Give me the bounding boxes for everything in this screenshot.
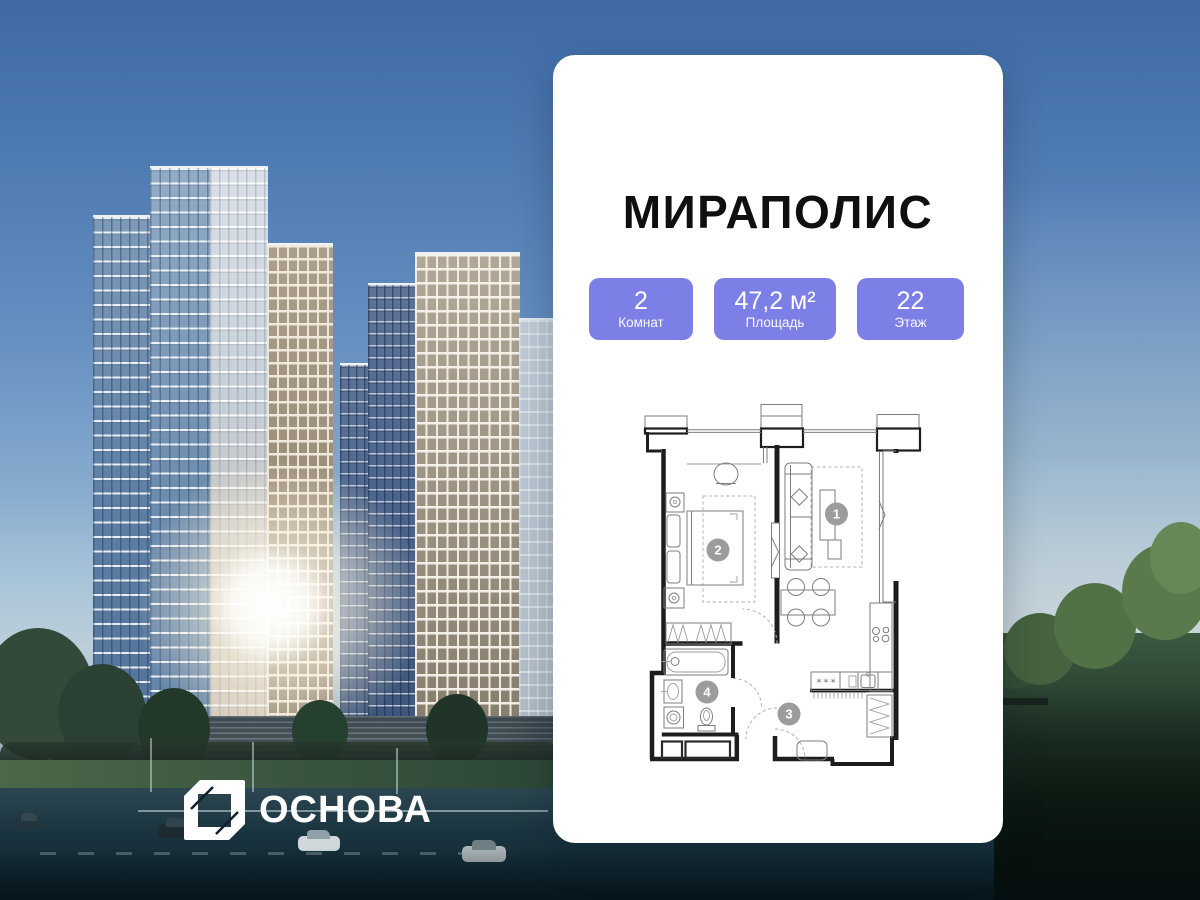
room-2-number: 2 xyxy=(714,543,721,558)
kitchen-fixtures: *** xyxy=(797,603,892,760)
trees-right-cluster xyxy=(994,538,1200,900)
ad-banner: ОСНОВА МИРАПОЛИС 2 Комнат 47,2 м² Площад… xyxy=(0,0,1200,900)
room-4-number: 4 xyxy=(703,685,711,700)
sun-glow-core xyxy=(205,540,335,670)
developer-logo: ОСНОВА xyxy=(183,778,432,842)
osnova-cube-icon xyxy=(183,779,246,842)
room-badge-2: 2 xyxy=(707,539,730,562)
tower-render-white-frame xyxy=(415,252,520,747)
badge-area: 47,2 м² Площадь xyxy=(714,278,836,340)
room-badge-1: 1 xyxy=(825,503,848,526)
door-arcs xyxy=(733,609,805,759)
rooms-label: Комнат xyxy=(618,315,664,330)
floor-plan: *** xyxy=(630,395,940,790)
floor-plan-drawing: *** xyxy=(630,395,940,790)
apartment-card: МИРАПОЛИС 2 Комнат 47,2 м² Площадь 22 Эт… xyxy=(553,55,1003,843)
room-1-number: 1 xyxy=(833,507,840,522)
room-3-number: 3 xyxy=(785,707,792,722)
area-label: Площадь xyxy=(746,315,805,330)
tower-render-hazy xyxy=(519,318,554,747)
rooms-value: 2 xyxy=(634,287,648,315)
room-badge-4: 4 xyxy=(696,681,719,704)
badge-floor: 22 Этаж xyxy=(857,278,964,340)
counter-mark: *** xyxy=(816,678,837,689)
car xyxy=(14,818,44,830)
developer-logo-text: ОСНОВА xyxy=(259,778,432,842)
living-furniture xyxy=(781,463,862,626)
floor-value: 22 xyxy=(897,287,925,315)
floor-label: Этаж xyxy=(894,315,926,330)
project-title: МИРАПОЛИС xyxy=(553,183,1003,241)
badge-row: 2 Комнат 47,2 м² Площадь 22 Этаж xyxy=(589,278,967,340)
plan-balconies xyxy=(645,405,919,429)
badge-rooms: 2 Комнат xyxy=(589,278,693,340)
area-value: 47,2 м² xyxy=(734,287,815,315)
room-badge-3: 3 xyxy=(778,703,801,726)
bottom-vignette xyxy=(0,848,1200,900)
lamp-post xyxy=(150,738,152,792)
